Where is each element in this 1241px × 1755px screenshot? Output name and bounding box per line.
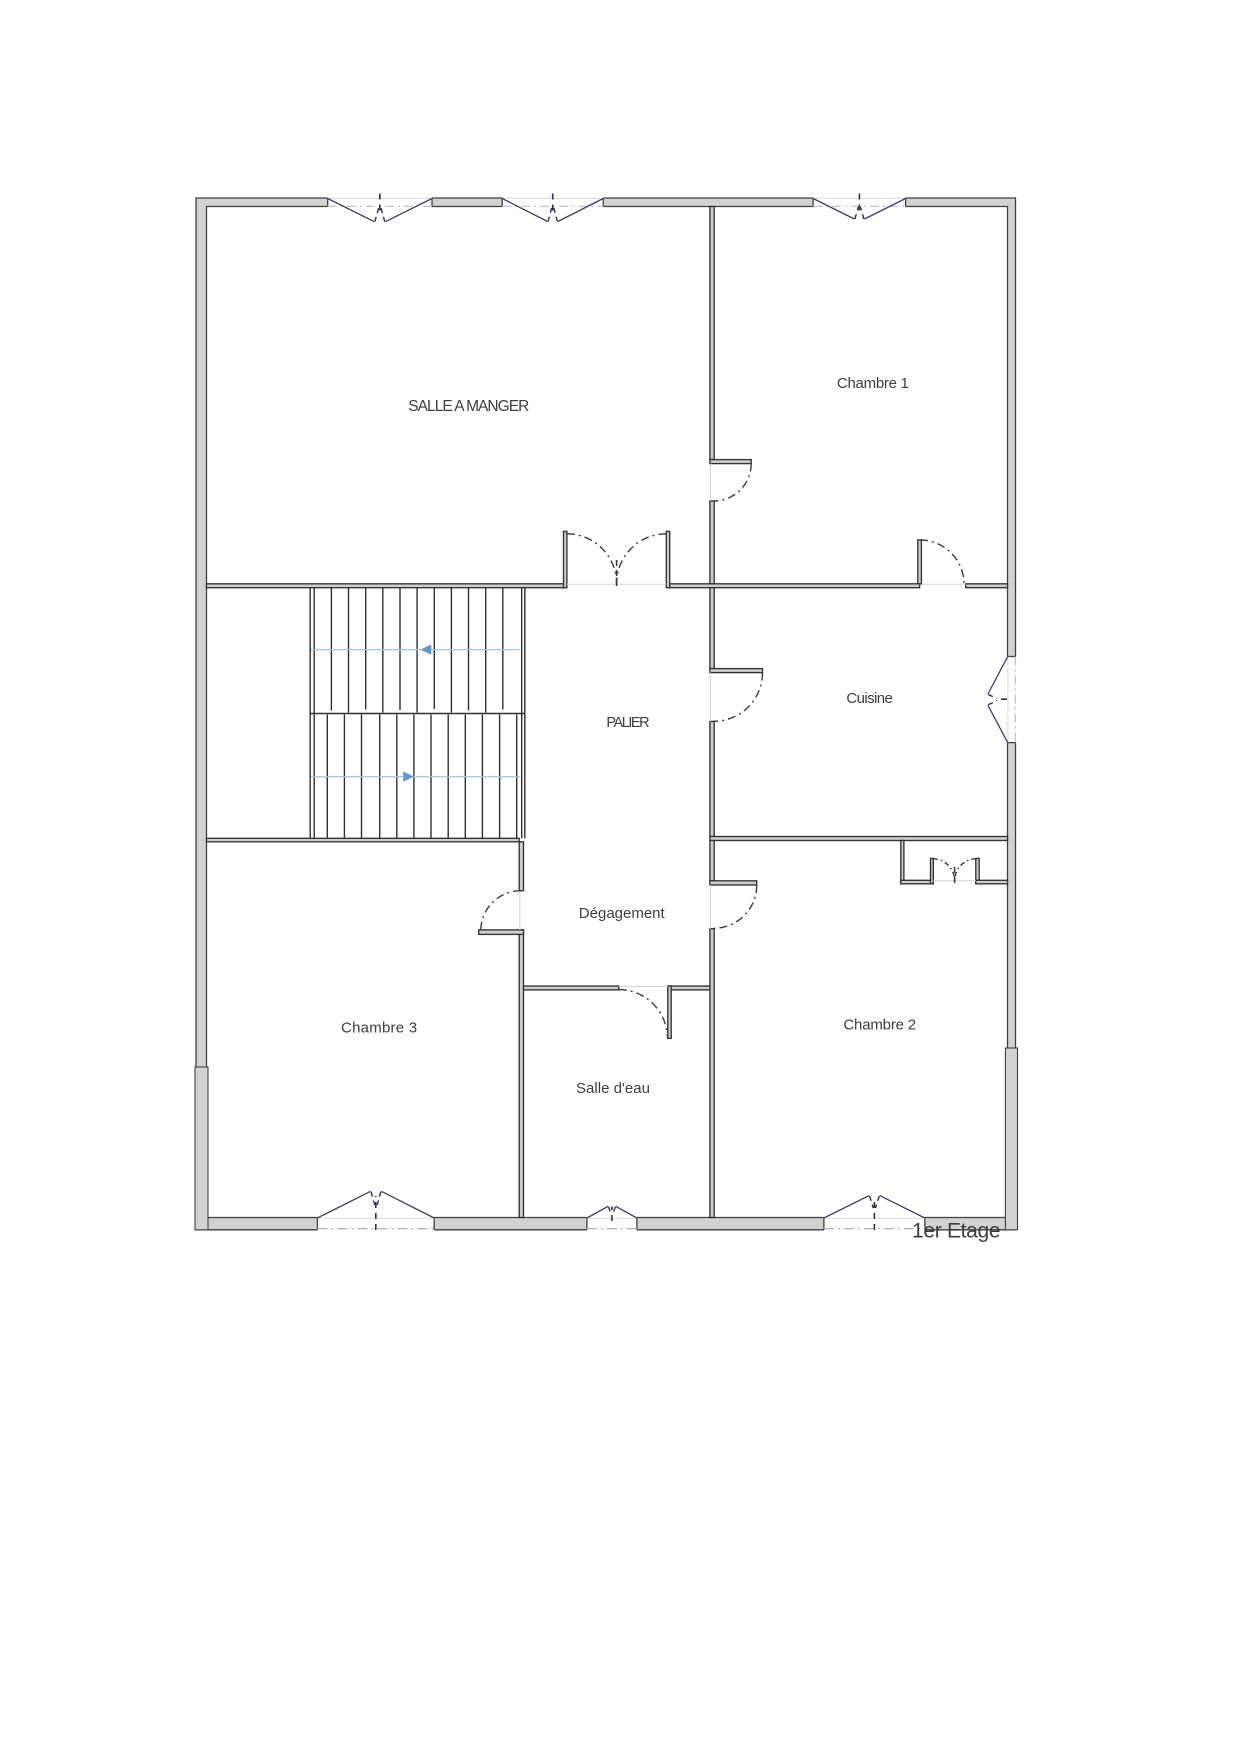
svg-text:SALLE A MANGER: SALLE A MANGER — [408, 398, 529, 415]
svg-text:Dégagement: Dégagement — [579, 905, 666, 922]
svg-text:1er Etage: 1er Etage — [912, 1220, 1001, 1243]
svg-text:Chambre 3: Chambre 3 — [341, 1019, 417, 1036]
svg-text:PALIER: PALIER — [606, 715, 649, 731]
svg-text:Chambre 2: Chambre 2 — [843, 1016, 916, 1033]
svg-text:Cuisine: Cuisine — [846, 690, 893, 707]
svg-text:Salle d'eau: Salle d'eau — [576, 1080, 650, 1097]
svg-text:Chambre 1: Chambre 1 — [837, 375, 909, 392]
